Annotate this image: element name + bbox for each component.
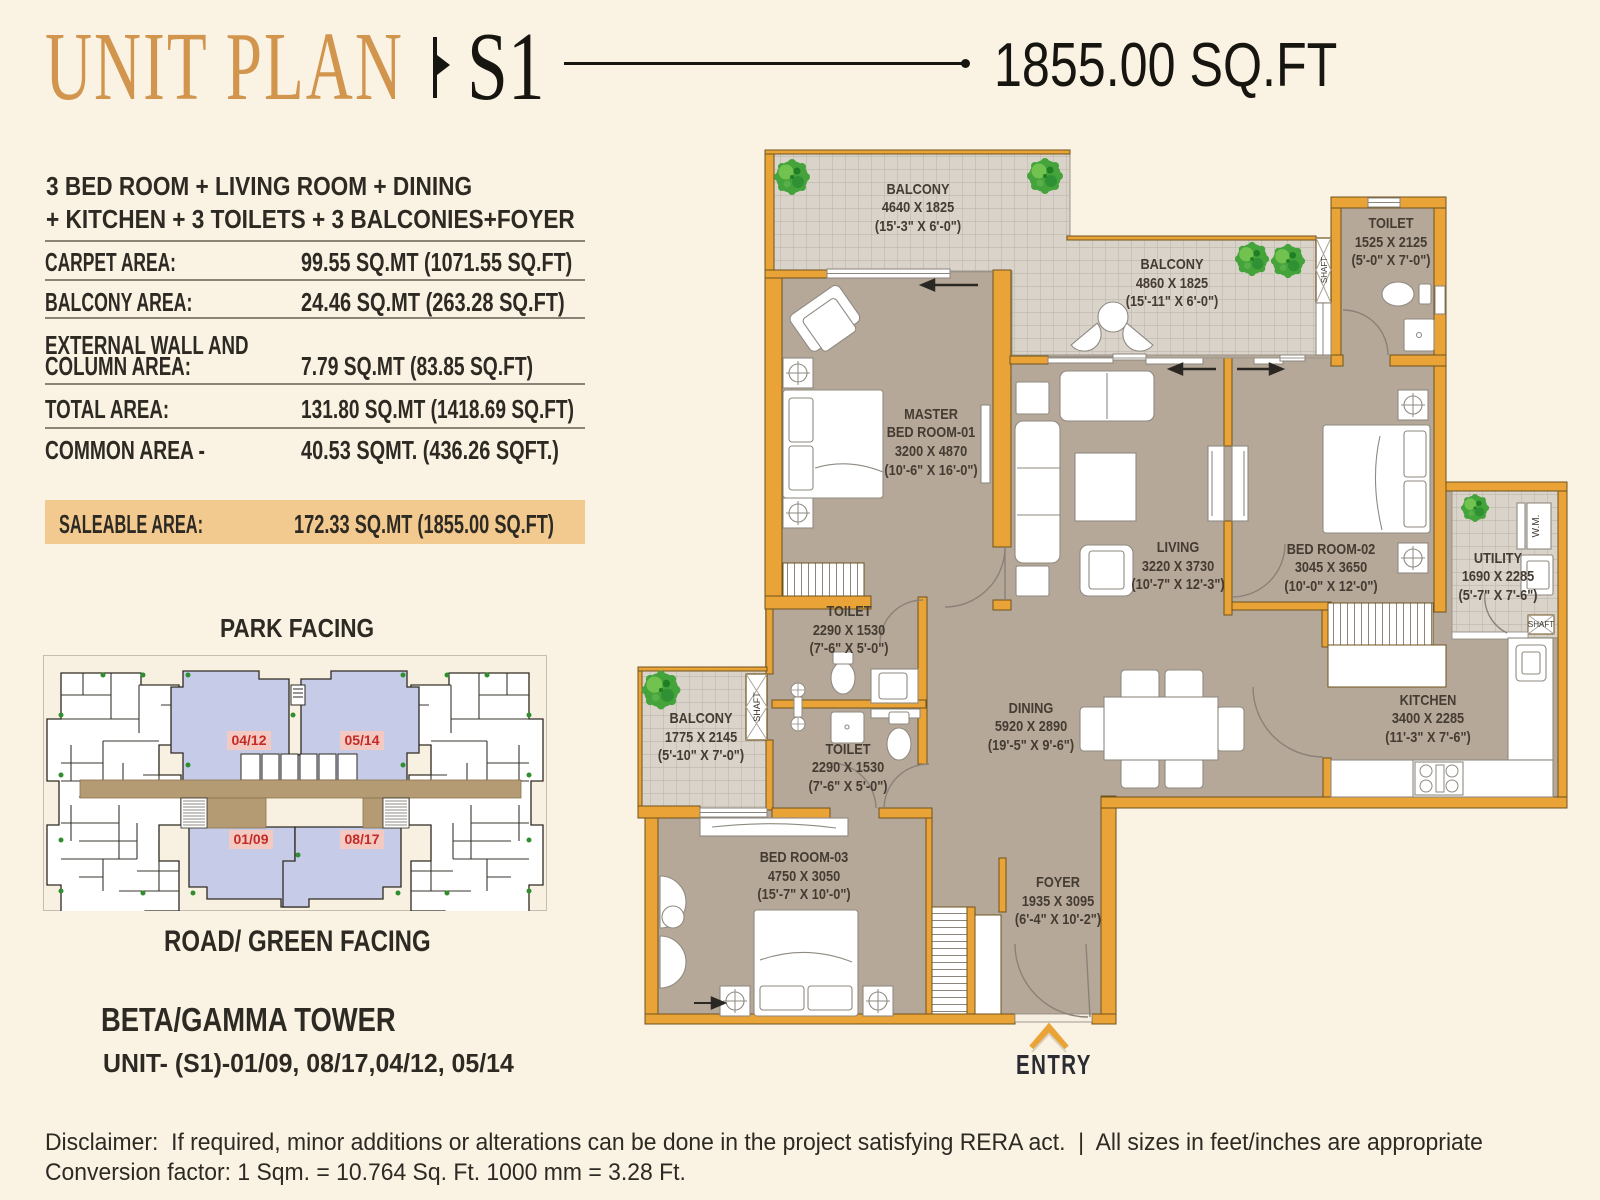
svg-text:01/09: 01/09 — [233, 831, 268, 847]
svg-text:08/17: 08/17 — [344, 831, 379, 847]
svg-text:04/12: 04/12 — [231, 732, 266, 748]
svg-text:W.M.: W.M. — [1531, 515, 1542, 538]
svg-text:SHAFT: SHAFT — [1320, 257, 1329, 283]
svg-text:SHAFT: SHAFT — [752, 692, 762, 722]
svg-text:SHAFT: SHAFT — [1528, 620, 1554, 629]
svg-text:05/14: 05/14 — [344, 732, 379, 748]
